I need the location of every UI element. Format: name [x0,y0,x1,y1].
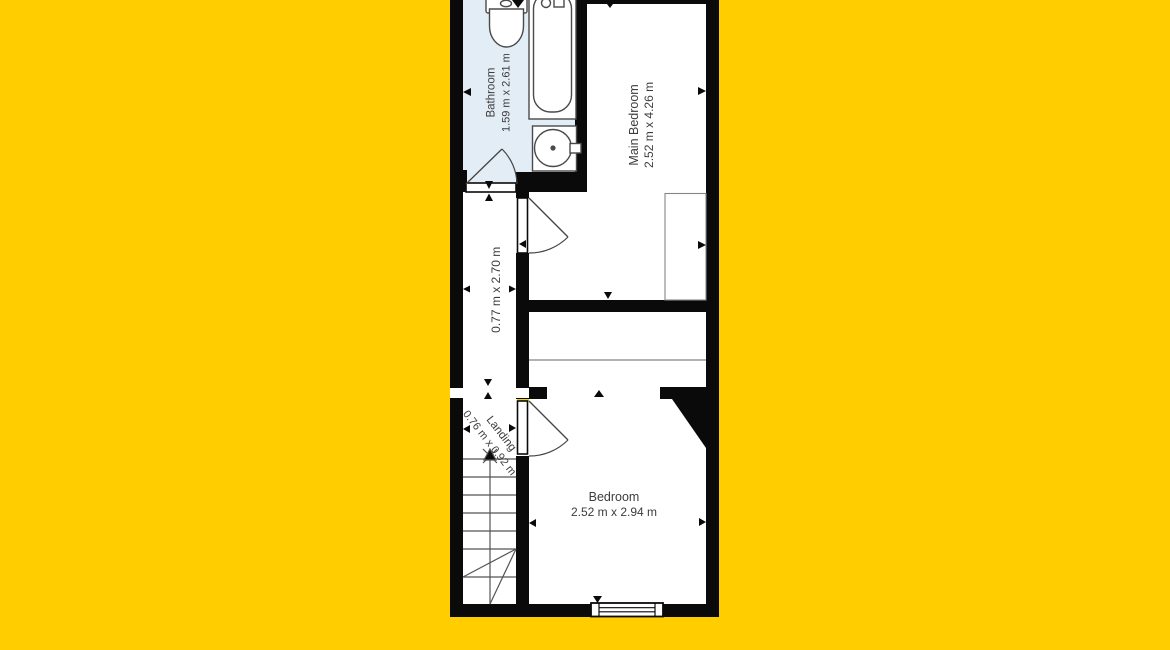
wall-bottom [450,604,719,617]
wall-left [450,0,463,617]
wall-corridor-jamb [516,172,529,198]
floor-plan-drawing [0,0,1170,650]
room-name: Bathroom [484,23,499,163]
sink-fixture [533,126,582,171]
wall-top [576,0,719,4]
wall-bedroom-top-right [660,387,719,399]
screenshot-root: { "colors": { "background": "#FFCD00", "… [0,0,1170,650]
room-dimensions: 0.77 m x 2.70 m [489,220,505,360]
room-name: Main Bedroom [626,45,642,205]
wall-bathroom-door-jamb [450,170,467,192]
corridor-label: 0.77 m x 2.70 m [489,220,505,360]
bathtub-fixture [529,0,576,119]
wall-corridor-right [516,253,529,399]
bedroom-label: Bedroom 2.52 m x 2.94 m [524,489,704,521]
main-bedroom-floor-ext [529,192,587,300]
bathroom-label: Bathroom 1.59 m x 2.61 m [484,23,513,163]
room-dimensions: 2.52 m x 4.26 m [642,45,658,205]
floor-plan-canvas: Bathroom 1.59 m x 2.61 m Main Bedroom 2.… [0,0,1170,650]
room-dimensions: 1.59 m x 2.61 m [499,23,513,163]
room-dimensions: 2.52 m x 2.94 m [524,505,704,521]
wall-notch-right [516,388,529,398]
wall-bedroom-top-left [529,387,547,399]
window-fixture [591,603,663,617]
void-floor [529,310,706,387]
wall-main-bedroom-bottom [516,300,719,312]
room-name: Bedroom [524,489,704,505]
void-opening [547,387,660,399]
main-bedroom-label: Main Bedroom 2.52 m x 4.26 m [626,45,658,205]
